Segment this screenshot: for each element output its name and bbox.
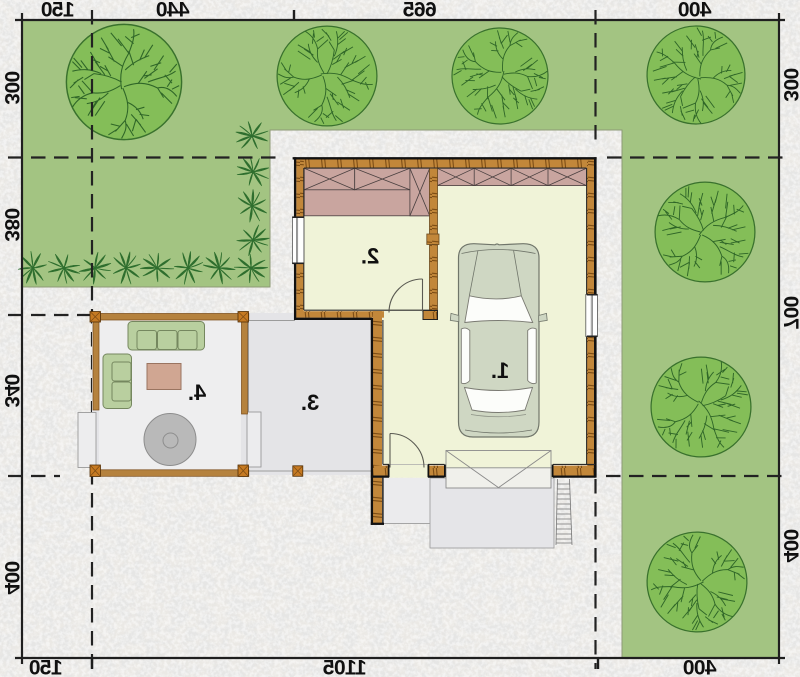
svg-text:150: 150 bbox=[41, 0, 74, 22]
svg-text:300: 300 bbox=[0, 71, 23, 104]
svg-text:3.: 3. bbox=[301, 390, 319, 415]
svg-text:665: 665 bbox=[402, 0, 436, 22]
svg-text:400: 400 bbox=[678, 0, 711, 22]
svg-text:340: 340 bbox=[0, 374, 23, 407]
svg-text:400: 400 bbox=[0, 561, 23, 594]
svg-text:2.: 2. bbox=[361, 244, 379, 269]
svg-text:400: 400 bbox=[683, 657, 716, 677]
svg-text:380: 380 bbox=[0, 208, 23, 241]
svg-text:400: 400 bbox=[779, 529, 800, 562]
svg-text:700: 700 bbox=[779, 296, 800, 329]
svg-text:1.: 1. bbox=[491, 358, 509, 383]
svg-text:150: 150 bbox=[29, 657, 62, 677]
svg-text:440: 440 bbox=[156, 0, 189, 22]
svg-text:1105: 1105 bbox=[323, 657, 367, 677]
svg-text:4.: 4. bbox=[188, 380, 206, 405]
svg-text:300: 300 bbox=[779, 68, 800, 101]
